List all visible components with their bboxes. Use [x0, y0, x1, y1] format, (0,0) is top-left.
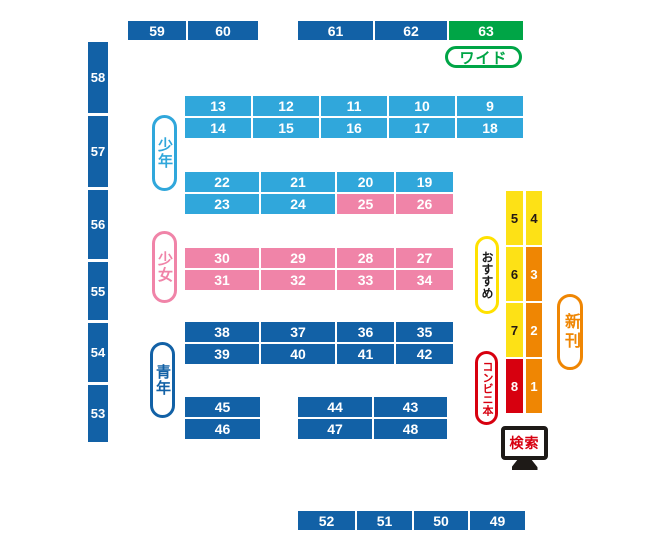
shelf-4: 4 — [526, 191, 542, 245]
shelf-44: 44 — [298, 397, 372, 417]
bottom-wall-shelves: 52 51 50 49 — [298, 511, 525, 530]
seinen-lower-right-shelves: 44 43 47 48 — [298, 397, 447, 439]
shelf-20: 20 — [337, 172, 394, 192]
seinen-upper-shelves: 38 37 36 35 39 40 41 42 — [185, 322, 453, 364]
shelf-14: 14 — [185, 118, 251, 138]
shelf-33: 33 — [337, 270, 394, 290]
shelf-56: 56 — [88, 190, 108, 259]
shelf-42: 42 — [396, 344, 453, 364]
shelf-15: 15 — [253, 118, 319, 138]
shelf-3: 3 — [526, 247, 542, 301]
shelf-26: 26 — [396, 194, 453, 214]
shelf-34: 34 — [396, 270, 453, 290]
shelf-60: 60 — [188, 21, 258, 40]
shelf-43: 43 — [374, 397, 447, 417]
shelf-31: 31 — [185, 270, 259, 290]
shelf-51: 51 — [357, 511, 412, 530]
shelf-47: 47 — [298, 419, 372, 439]
boys-upper-shelves: 13 12 11 10 9 14 15 16 17 18 — [185, 96, 523, 138]
section-label-seinen: 青年 — [150, 342, 175, 418]
shelf-18: 18 — [457, 118, 523, 138]
shelf-9: 9 — [457, 96, 523, 116]
shelf-30: 30 — [185, 248, 259, 268]
seinen-lower-left-shelves: 45 46 — [185, 397, 260, 439]
shelf-53: 53 — [88, 385, 108, 442]
shelf-55: 55 — [88, 262, 108, 320]
shelf-48: 48 — [374, 419, 447, 439]
shelf-2: 2 — [526, 303, 542, 357]
shelf-35: 35 — [396, 322, 453, 342]
shelf-63-wide: 63 — [449, 21, 523, 40]
store-floor-map: 58 57 56 55 54 53 59 60 61 62 63 ワイド 少年 … — [0, 0, 670, 550]
wide-label: ワイド — [445, 46, 522, 68]
monitor-icon: 検索 — [501, 426, 548, 460]
shelf-58: 58 — [88, 42, 108, 113]
shelf-49: 49 — [470, 511, 525, 530]
shelf-19: 19 — [396, 172, 453, 192]
shelf-23: 23 — [185, 194, 259, 214]
search-kiosk-label: 検索 — [510, 433, 540, 453]
shelf-22: 22 — [185, 172, 259, 192]
shelf-25: 25 — [337, 194, 394, 214]
shelf-27: 27 — [396, 248, 453, 268]
shelf-29: 29 — [261, 248, 335, 268]
boys-lower-shelves: 22 21 20 19 23 24 25 26 — [185, 172, 453, 214]
girls-shelves: 30 29 28 27 31 32 33 34 — [185, 248, 453, 290]
search-kiosk[interactable]: 検索 — [501, 426, 548, 470]
shelf-39: 39 — [185, 344, 259, 364]
shelf-52: 52 — [298, 511, 355, 530]
shelf-17: 17 — [389, 118, 455, 138]
shelf-10: 10 — [389, 96, 455, 116]
shelf-40: 40 — [261, 344, 335, 364]
shelf-13: 13 — [185, 96, 251, 116]
shelf-6: 6 — [506, 247, 523, 301]
top-wall-shelves-left: 59 60 — [128, 21, 258, 40]
featured-shelves: 5 6 7 8 4 3 2 1 — [506, 191, 542, 413]
section-label-new-releases: 新刊 — [557, 294, 583, 370]
shelf-1: 1 — [526, 359, 542, 413]
shelf-36: 36 — [337, 322, 394, 342]
left-wall-shelves: 58 57 56 55 54 53 — [88, 42, 108, 442]
shelf-37: 37 — [261, 322, 335, 342]
shelf-8: 8 — [506, 359, 523, 413]
shelf-12: 12 — [253, 96, 319, 116]
shelf-28: 28 — [337, 248, 394, 268]
shelf-59: 59 — [128, 21, 186, 40]
shelf-21: 21 — [261, 172, 335, 192]
section-label-recommended: おすすめ — [475, 236, 499, 314]
shelf-5: 5 — [506, 191, 523, 245]
section-label-convenience-books: コンビニ本 — [475, 351, 498, 425]
shelf-62: 62 — [375, 21, 447, 40]
shelf-45: 45 — [185, 397, 260, 417]
monitor-stand-icon — [512, 460, 538, 470]
shelf-11: 11 — [321, 96, 387, 116]
shelf-46: 46 — [185, 419, 260, 439]
section-label-girls: 少女 — [152, 231, 177, 303]
top-wall-shelves-right: 61 62 63 — [298, 21, 523, 40]
shelf-61: 61 — [298, 21, 373, 40]
shelf-16: 16 — [321, 118, 387, 138]
shelf-24: 24 — [261, 194, 335, 214]
shelf-32: 32 — [261, 270, 335, 290]
section-label-boys: 少年 — [152, 115, 177, 191]
shelf-7: 7 — [506, 303, 523, 357]
shelf-54: 54 — [88, 323, 108, 382]
shelf-57: 57 — [88, 116, 108, 187]
shelf-50: 50 — [414, 511, 468, 530]
shelf-41: 41 — [337, 344, 394, 364]
shelf-38: 38 — [185, 322, 259, 342]
